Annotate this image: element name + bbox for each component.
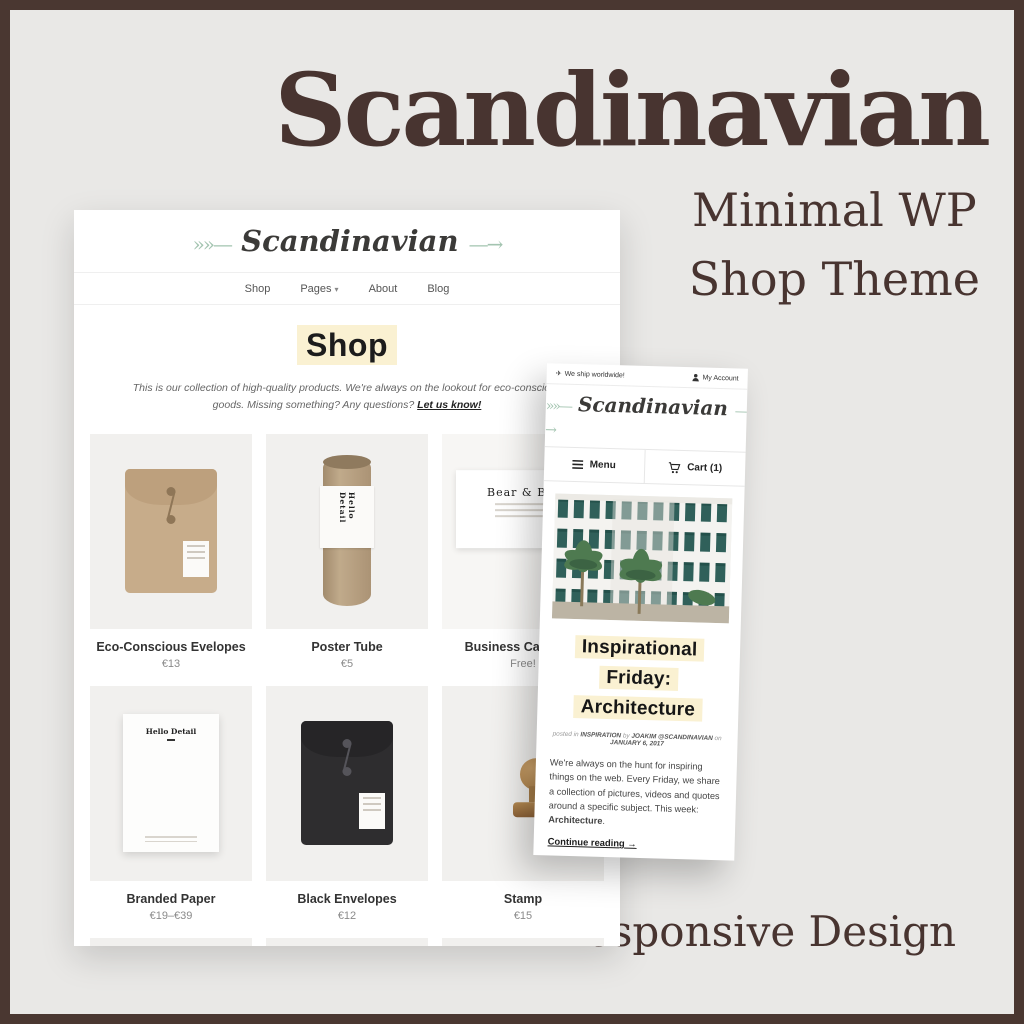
logo-right-arrow-icon: —→ bbox=[469, 232, 502, 256]
post-title: Inspirational Friday: Architecture bbox=[537, 631, 740, 727]
black-envelope-art bbox=[301, 721, 393, 845]
nav-item-blog[interactable]: Blog bbox=[427, 283, 449, 295]
poster-tube-art: Hello Detail bbox=[323, 456, 371, 606]
promo-subtitle: Minimal WP Shop Theme bbox=[689, 176, 980, 314]
product-card-partial-pencil[interactable] bbox=[266, 938, 428, 946]
kraft-envelope-art bbox=[125, 469, 217, 593]
architecture-photo-art bbox=[552, 493, 732, 623]
product-price: €15 bbox=[442, 910, 604, 922]
page-title: Shop bbox=[74, 327, 620, 364]
logo-left-arrow-icon: »»— bbox=[193, 232, 231, 256]
branded-paper-art: Hello Detail bbox=[123, 714, 219, 852]
post-title-line2: Friday: bbox=[599, 666, 678, 691]
chevron-down-icon: ▾ bbox=[335, 285, 339, 294]
continue-reading-link[interactable]: Continue reading → bbox=[548, 836, 637, 849]
mobile-site-logo-text: Scandinavian bbox=[578, 392, 729, 420]
nav-item-about[interactable]: About bbox=[369, 283, 398, 295]
product-price: €19–€39 bbox=[90, 910, 252, 922]
post-featured-image[interactable] bbox=[552, 493, 732, 623]
product-image-twine[interactable] bbox=[90, 938, 252, 946]
post-excerpt: We're always on the hunt for inspiring t… bbox=[548, 755, 723, 831]
menu-toggle-button[interactable]: Menu bbox=[544, 447, 645, 483]
promo-subtitle-line1: Minimal WP bbox=[689, 176, 980, 245]
post-title-line1: Inspirational bbox=[575, 635, 705, 662]
product-price: €12 bbox=[266, 910, 428, 922]
product-image-branded-paper[interactable]: Hello Detail bbox=[90, 686, 252, 881]
hamburger-icon bbox=[573, 460, 584, 469]
product-image-kraft-envelope[interactable] bbox=[90, 434, 252, 629]
product-image-poster-tube[interactable]: Hello Detail bbox=[266, 434, 428, 629]
mobile-header: »»— Scandinavian —→ bbox=[545, 384, 748, 452]
product-card-partial-twine[interactable] bbox=[90, 938, 252, 946]
post-date: JANUARY 6, 2017 bbox=[610, 739, 664, 747]
product-name[interactable]: Branded Paper bbox=[90, 892, 252, 906]
airplane-icon: ✈ bbox=[556, 369, 562, 377]
main-navigation: Shop Pages▾ About Blog bbox=[74, 272, 620, 305]
promo-title: Scandinavian bbox=[274, 60, 988, 160]
product-name[interactable]: Poster Tube bbox=[266, 640, 428, 654]
user-icon bbox=[691, 373, 699, 381]
post-category-link[interactable]: INSPIRATION bbox=[580, 731, 621, 739]
product-card-poster-tube[interactable]: Hello Detail Poster Tube €5 bbox=[266, 434, 428, 670]
product-card-black-envelopes[interactable]: Black Envelopes €12 bbox=[266, 686, 428, 922]
product-image-black-envelope[interactable] bbox=[266, 686, 428, 881]
nav-item-shop[interactable]: Shop bbox=[245, 283, 271, 295]
cart-icon bbox=[668, 461, 681, 473]
nav-item-pages[interactable]: Pages▾ bbox=[300, 283, 338, 295]
post-meta: posted in INSPIRATION by JOAKIM @SCANDIN… bbox=[536, 730, 737, 750]
product-image-blank[interactable] bbox=[442, 938, 604, 946]
product-name[interactable]: Black Envelopes bbox=[266, 892, 428, 906]
logo-left-arrow-icon: »»— bbox=[546, 398, 572, 415]
let-us-know-link[interactable]: Let us know! bbox=[417, 399, 481, 411]
shop-intro-text: This is our collection of high-quality p… bbox=[133, 382, 561, 411]
my-account-link[interactable]: My Account bbox=[691, 373, 738, 382]
paper-label-text: Hello Detail bbox=[123, 727, 219, 736]
post-excerpt-bold: Architecture bbox=[548, 814, 602, 826]
promo-subtitle-line2: Shop Theme bbox=[689, 245, 980, 314]
product-card-branded-paper[interactable]: Hello Detail Branded Paper €19–€39 bbox=[90, 686, 252, 922]
product-card-eco-envelopes[interactable]: Eco-Conscious Evelopes €13 bbox=[90, 434, 252, 670]
desktop-header: »»— Scandinavian —→ bbox=[74, 210, 620, 272]
product-image-pencil[interactable] bbox=[266, 938, 428, 946]
shop-intro: This is our collection of high-quality p… bbox=[129, 380, 565, 414]
site-logo[interactable]: »»— Scandinavian —→ bbox=[193, 224, 502, 258]
product-name[interactable]: Stamp bbox=[442, 892, 604, 906]
product-price: €5 bbox=[266, 658, 428, 670]
promo-canvas: Scandinavian Minimal WP Shop Theme Respo… bbox=[0, 0, 1024, 1024]
product-card-partial-blank[interactable] bbox=[442, 938, 604, 946]
post-title-line3: Architecture bbox=[573, 695, 702, 722]
mobile-menu-bar: Menu Cart (1) bbox=[544, 446, 746, 487]
cart-button[interactable]: Cart (1) bbox=[644, 450, 746, 486]
tube-label-text: Hello Detail bbox=[338, 492, 356, 548]
site-logo-text: Scandinavian bbox=[241, 224, 458, 258]
product-name[interactable]: Eco-Conscious Evelopes bbox=[90, 640, 252, 654]
mobile-screenshot: ✈ We ship worldwide! My Account »»— Scan… bbox=[533, 363, 748, 860]
shipping-notice: ✈ We ship worldwide! bbox=[556, 369, 625, 379]
product-price: €13 bbox=[90, 658, 252, 670]
mobile-site-logo[interactable]: »»— Scandinavian —→ bbox=[545, 391, 747, 445]
